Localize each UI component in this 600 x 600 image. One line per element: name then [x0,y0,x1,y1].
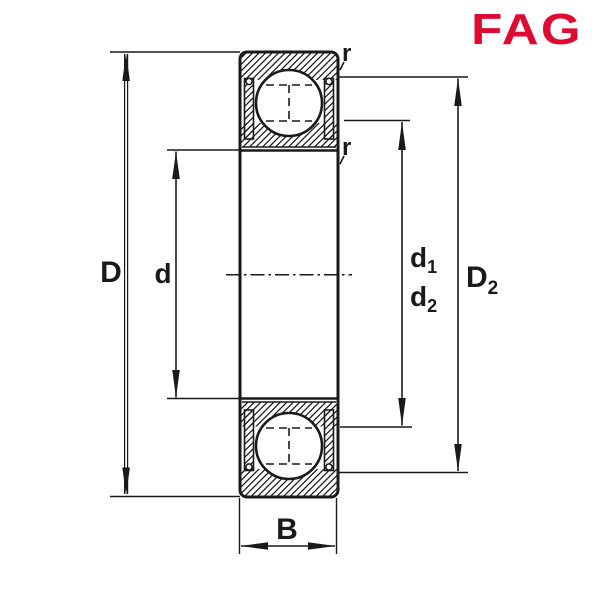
arrowhead-down [398,398,406,426]
shield-bottom-left [245,410,254,471]
label-d2: d2 [410,281,437,316]
arrowhead-down [172,370,180,398]
arrowhead-up [398,122,406,150]
arrowhead-right [308,542,336,550]
shield-bottom-right [325,410,334,471]
chamfer-callout-outer: r [340,40,351,70]
label-d1: d1 [410,242,437,277]
drawing-canvas: D d d1 d2 D2 B r [0,0,600,600]
label-B: B [276,513,298,546]
bearing-dimension-drawing: D d d1 d2 D2 B r [0,0,600,600]
fag-logo: FAG [471,5,583,54]
label-D: D [100,256,122,289]
dimension-D2: D2 [339,77,498,473]
arrowhead-left [241,542,269,550]
label-D2: D2 [466,261,498,299]
arrowhead-up [172,152,180,180]
dimension-B: B [240,498,337,554]
dimension-d1-d2: d1 d2 [340,121,437,428]
bearing-cross-section [226,52,352,497]
shield-top-right [325,78,334,139]
label-d: d [154,258,171,289]
fag-logo-text: FAG [471,5,583,54]
arrowhead-down [454,444,462,471]
arrowhead-up [454,79,462,107]
chamfer-callout-inner: r [340,134,351,164]
shield-top-left [245,78,254,139]
arrowhead-down [122,468,130,496]
arrowhead-up [122,53,130,81]
